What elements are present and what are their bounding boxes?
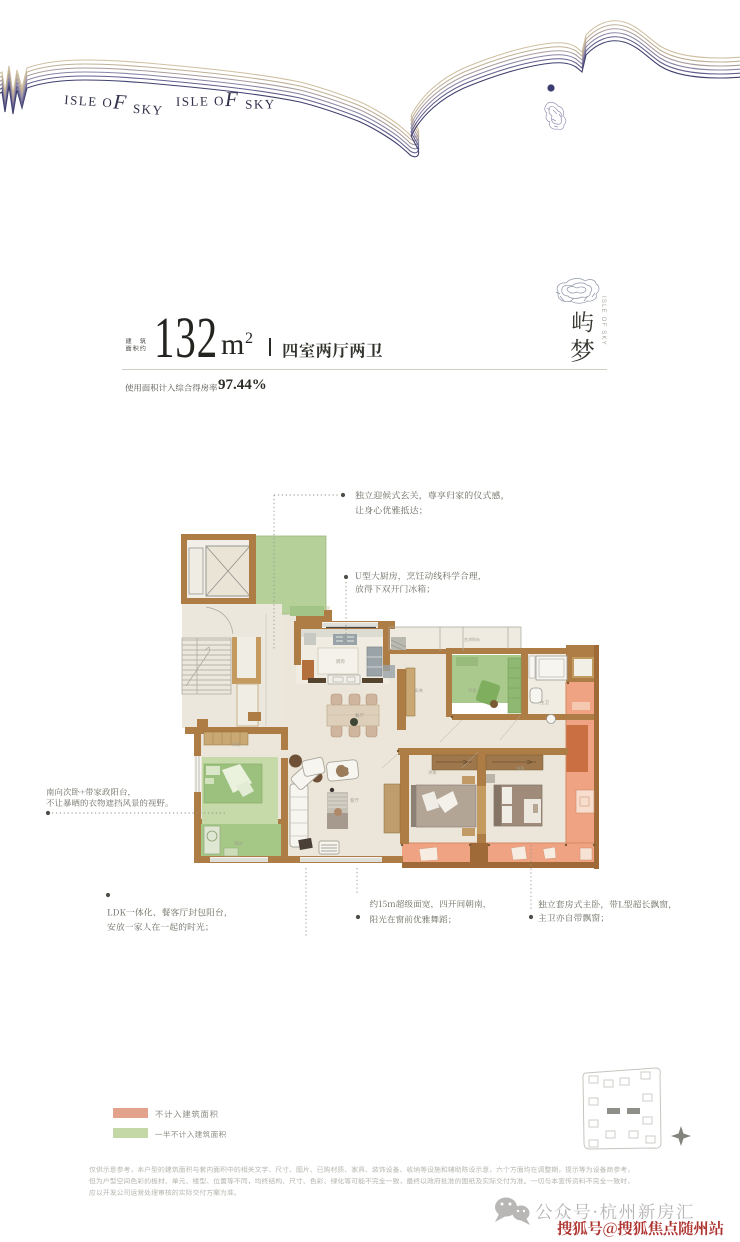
svg-text:ISLE OF SKY: ISLE OF SKY	[176, 86, 276, 113]
svg-text:ISLE OF SKY: ISLE OF SKY	[64, 86, 165, 118]
